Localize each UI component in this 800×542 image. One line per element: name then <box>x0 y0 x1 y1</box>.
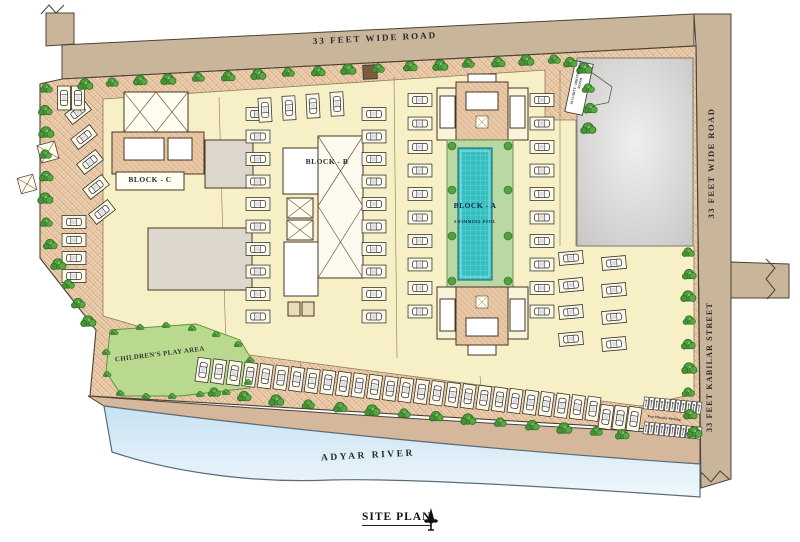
parking-stall <box>530 282 554 295</box>
road-stub-left <box>46 13 74 46</box>
swimming-pool <box>458 148 492 280</box>
block-a-label: BLOCK - A <box>435 202 515 210</box>
parking-stall <box>559 332 584 347</box>
parking-stall <box>559 305 584 320</box>
parking-stall <box>246 265 270 278</box>
parking-stall <box>408 211 432 224</box>
utility-structure <box>17 174 37 194</box>
parking-stall <box>602 283 627 298</box>
parking-stall <box>246 220 270 233</box>
parking-stall <box>58 86 71 110</box>
site-plan-map <box>0 0 800 542</box>
parking-stall <box>282 96 296 121</box>
parking-stall <box>408 164 432 177</box>
parking-stall <box>246 243 270 256</box>
block-a-sublabel: SWIMMING POOL <box>445 220 505 224</box>
parking-stall <box>72 86 85 110</box>
parking-stall <box>408 188 432 201</box>
parking-stall <box>306 94 320 119</box>
parking-stall <box>530 188 554 201</box>
road-stub-right <box>731 262 789 298</box>
parking-stall <box>408 305 432 318</box>
parking-stall <box>362 175 386 188</box>
parking-stall <box>362 288 386 301</box>
parking-stall <box>246 288 270 301</box>
parking-stall <box>602 337 627 352</box>
parking-stall <box>530 258 554 271</box>
parking-stall <box>602 310 627 325</box>
vacant-plot <box>577 58 693 246</box>
site-plan-page: 33 FEET WIDE ROAD 33 FEET WIDE ROAD 33 F… <box>0 0 800 542</box>
parking-stall <box>559 278 584 293</box>
north-arrow-icon <box>422 507 440 533</box>
parking-stall <box>559 251 584 266</box>
parking-stall <box>530 305 554 318</box>
parking-stall <box>362 265 386 278</box>
parking-stall <box>62 234 86 247</box>
parking-stall <box>362 108 386 121</box>
parking-stall <box>362 130 386 143</box>
parking-stall <box>362 220 386 233</box>
parking-stall <box>408 258 432 271</box>
block-b-label: BLOCK - B <box>287 158 367 166</box>
parking-stall <box>246 310 270 323</box>
parking-stall <box>530 235 554 248</box>
parking-stall <box>530 94 554 107</box>
parking-stall <box>258 98 272 123</box>
parking-stall <box>330 92 344 117</box>
street-label-kabilar: 33 FEET KABILAR STREET <box>706 297 718 437</box>
parking-stall <box>62 252 86 265</box>
parking-stall <box>530 164 554 177</box>
parking-stall <box>62 216 86 229</box>
parking-stall <box>530 117 554 130</box>
parking-stall <box>602 256 627 271</box>
parking-stall <box>246 198 270 211</box>
parking-stall <box>530 141 554 154</box>
parking-stall <box>246 130 270 143</box>
parking-stall <box>246 153 270 166</box>
parking-stall <box>408 235 432 248</box>
parking-stall <box>362 243 386 256</box>
parking-stall <box>408 117 432 130</box>
parking-stall <box>408 94 432 107</box>
road-label-right: 33 FEET WIDE ROAD <box>707 103 719 223</box>
parking-stall <box>408 282 432 295</box>
parking-stall <box>408 141 432 154</box>
parking-stall <box>530 211 554 224</box>
site-plan-title: SITE PLAN <box>362 512 431 526</box>
parking-stall <box>246 175 270 188</box>
parking-stall <box>362 198 386 211</box>
parking-stall <box>362 310 386 323</box>
block-c-label: BLOCK - C <box>110 176 190 184</box>
